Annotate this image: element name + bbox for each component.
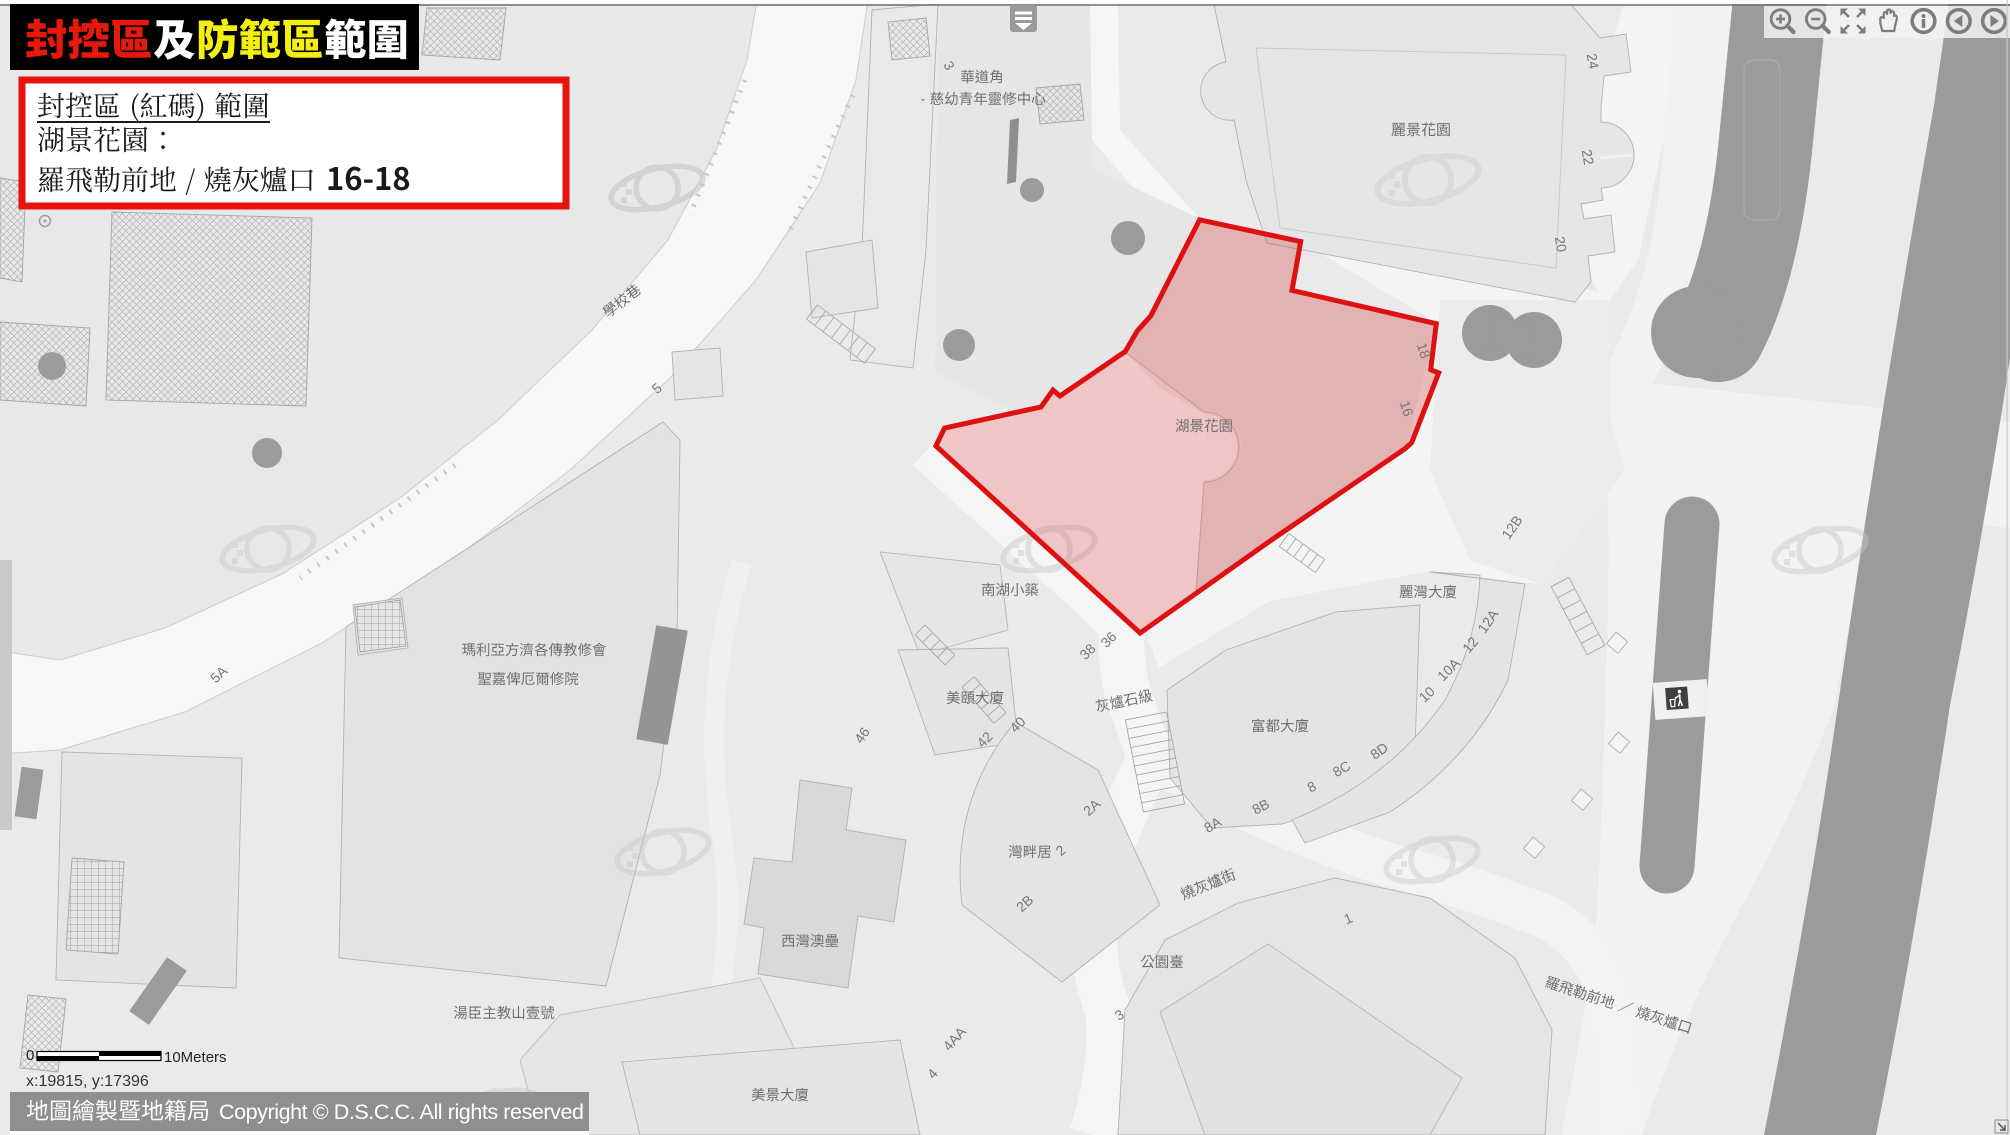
svg-text:24: 24 — [1584, 52, 1602, 70]
svg-text:20: 20 — [1552, 235, 1570, 253]
svg-text:22: 22 — [1579, 148, 1597, 166]
svg-text:0: 0 — [26, 1047, 34, 1064]
svg-text:Copyright © D.S.C.C. All right: Copyright © D.S.C.C. All rights reserved — [219, 1100, 584, 1124]
svg-text:x:19815, y:17396: x:19815, y:17396 — [26, 1073, 149, 1090]
svg-text:10Meters: 10Meters — [164, 1049, 227, 1066]
